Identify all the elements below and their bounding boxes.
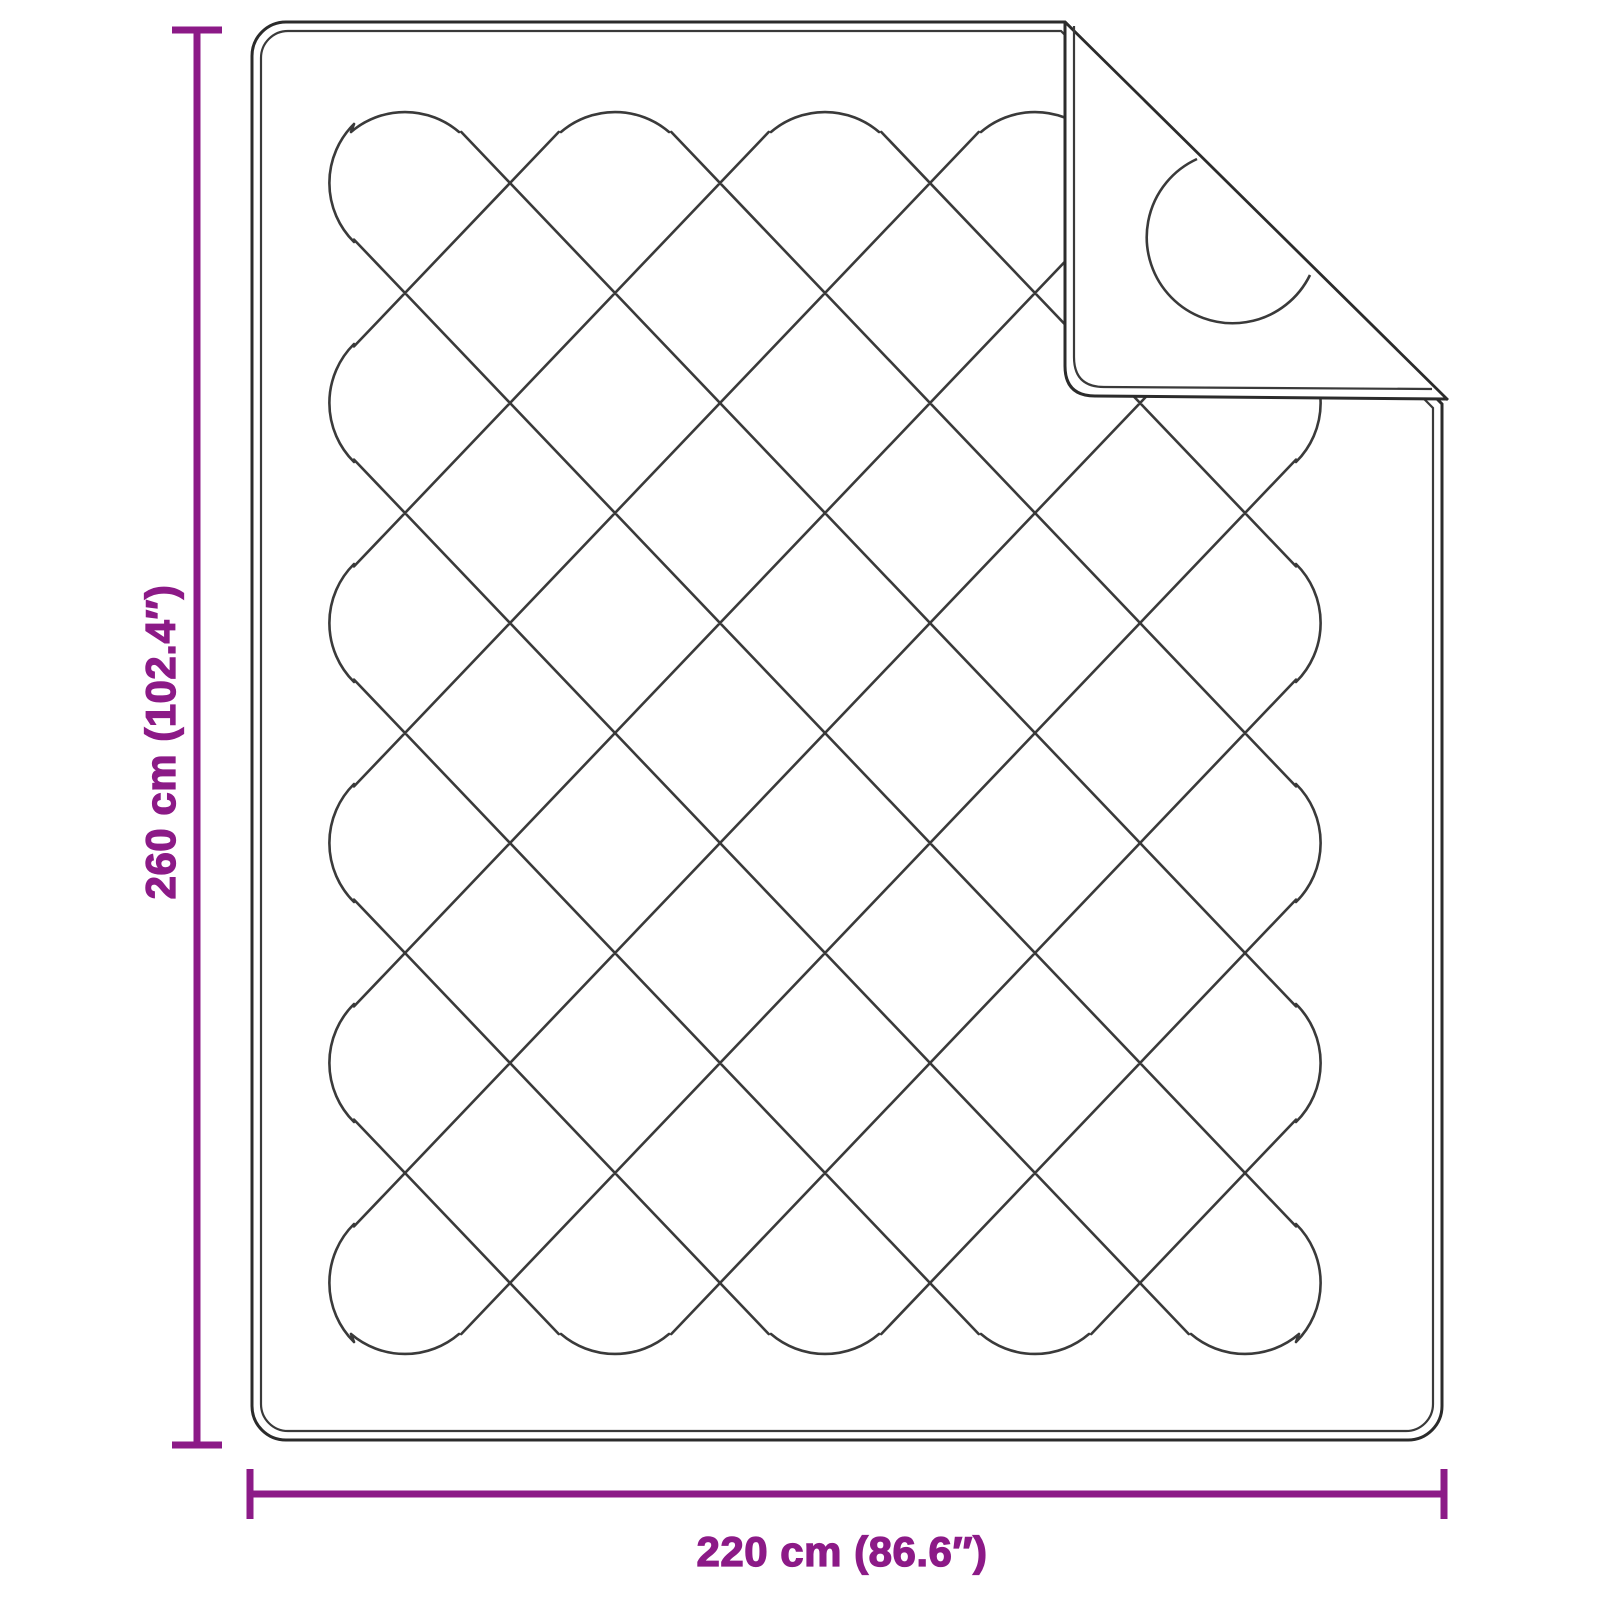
height-dimension-label: 260 cm (102.4″) — [137, 585, 185, 900]
folded-corner-flap — [1065, 22, 1449, 400]
diagram-scene — [0, 0, 1600, 1600]
dimension-diagram: 260 cm (102.4″) 220 cm (86.6″) — [0, 0, 1600, 1600]
width-dimension-label: 220 cm (86.6″) — [697, 1528, 988, 1576]
